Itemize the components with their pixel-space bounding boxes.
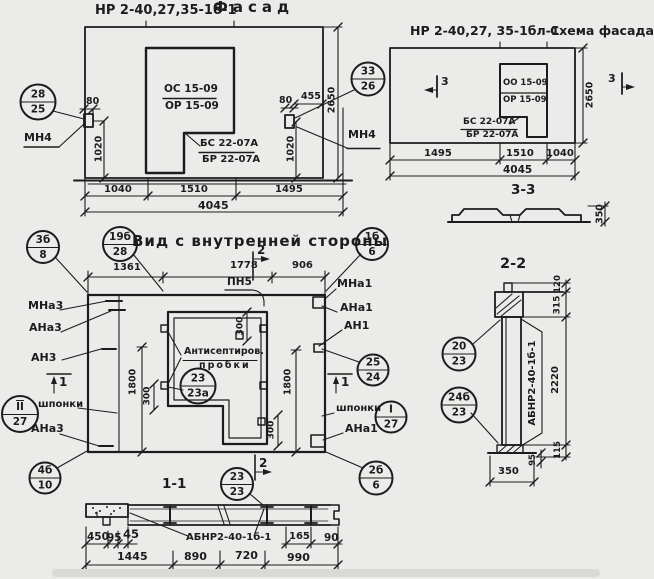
dim-4045-schema: 4045 [503,165,532,176]
dim-906: 906 [292,261,313,271]
callout-bottom: 27 [377,418,406,431]
callout-bottom: 10 [31,479,60,492]
cut-marker-2-bottom: 2 [259,457,267,469]
callout-bottom: 24 [359,371,388,384]
dim-120: 120 [554,275,563,293]
dim-1020-right: 1020 [286,136,296,162]
callout-bottom: 8 [28,248,58,261]
dim-350-s22: 350 [498,467,519,477]
section-2-2-title: 2-2 [500,257,526,272]
plugs-note-line2: пробки [199,361,251,371]
dowels-label-right: шпонки [336,404,381,414]
callout-top: II [3,401,37,415]
callout-24b-23: 24б 23 [441,387,478,424]
schema-title-name: Схема фасада [550,25,654,38]
dim-1800-right: 1800 [283,369,293,395]
callout-top: 2б [361,465,392,479]
dim-1445: 1445 [117,551,148,562]
dim-2650-facade: 2650 [327,87,337,113]
callout-33-26: 33 26 [351,62,386,97]
panel-mark-1-1: АБНР2-40-1б-1 [186,533,271,543]
dim-115: 115 [554,441,563,459]
dim-1040: 1040 [104,185,132,195]
callout-bottom: 23 [443,406,476,419]
callout-23-23: 23 23 [220,467,254,501]
dim-1510-schema: 1510 [506,149,534,159]
callout-3b-8: 3б 8 [26,230,60,264]
callout-top: 25 [359,357,388,371]
callout-top: 4б [31,465,60,479]
dim-315: 315 [554,296,563,315]
section-3-3-title: 3-3 [511,184,535,198]
callout-4b-10: 4б 10 [29,462,62,495]
callout-19b-28: 19б 28 [102,226,138,262]
schema-sill-mark-bottom: БР 22-07А [466,131,518,140]
callout-top: 23 [182,373,215,387]
callout-bottom: 6 [361,479,392,492]
blueprint-sheet: НР 2-40,27,35-1б-1 Фасад 28 25 33 26 МН4… [0,0,654,579]
dim-1040-schema: 1040 [546,149,574,159]
dim-2650-schema: 2650 [585,82,595,108]
cut-marker-2-top: 2 [257,244,265,256]
cut-marker-3-right: 3 [608,73,616,84]
dim-300-left: 300 [144,387,153,406]
anchor-label-an1: АН1 [344,320,369,331]
schema-title-code: НР 2-40,27, 35-1бл-1 [410,25,560,38]
section-1-1-title: 1-1 [162,478,186,492]
callout-bottom: 25 [22,103,55,116]
panel-label-pn5: ПН5 [227,277,252,288]
callout-bottom: 26 [353,80,384,93]
anchor-label-ana3: АНа3 [29,322,62,333]
cut-marker-1-right: 1 [341,376,349,388]
callout-top: 23 [222,471,252,485]
dim-990: 990 [287,552,310,563]
callout-20-23: 20 23 [442,337,477,372]
dim-45: 45 [123,529,139,541]
schema-sill-mark-top: БС 22-07А [463,118,515,127]
callout-bottom: 6 [357,245,387,258]
callout-1b-6: 1б 6 [355,227,389,261]
callout-2b-6: 2б 6 [359,461,394,496]
facade-window-mark-top: ОС 15-09 [164,84,218,95]
callout-top: 33 [353,66,384,80]
facade-window-mark-bottom: ОР 15-09 [165,101,219,112]
anchor-label-mn4-right: МН4 [348,129,376,140]
dim-450: 450 [87,532,109,543]
cut-marker-3-left: 3 [441,76,449,87]
anchor-label-ana1-bottom: АНа1 [345,423,378,434]
callout-top: 3б [28,234,58,248]
anchor-label-mn4-left: МН4 [24,132,52,143]
anchor-label-an3: АН3 [31,352,56,363]
anchor-label-ana1: АНа1 [340,302,373,313]
dowels-label-left: шпонки [38,400,83,410]
dim-165: 165 [289,532,310,542]
callout-top: 19б [104,231,136,245]
dim-890: 890 [184,551,207,562]
dim-1778: 1778 [230,261,258,271]
dim-1495-schema: 1495 [424,149,452,159]
callout-top: 28 [22,89,55,103]
callout-25-24: 25 24 [357,354,390,387]
dim-300-top: 300 [237,317,246,336]
dim-1495: 1495 [275,185,303,195]
anchor-label-mna1: МНа1 [337,278,372,289]
callout-bottom: 23 [222,485,252,498]
dim-455: 455 [301,92,321,102]
dim-95-s11: 95 [107,533,122,544]
dim-720: 720 [235,550,258,561]
callout-top: 24б [443,392,476,406]
schema-window-mark-bottom: ОР 15-09 [503,96,547,105]
callout-23-23a: 23 23а [180,368,217,405]
dim-80-left: 80 [86,97,99,107]
cut-marker-1-left: 1 [59,376,67,388]
dim-1361: 1361 [113,263,141,273]
dim-350-schema: 350 [595,204,605,224]
callout-bottom: 23а [182,387,215,400]
dim-300-bottom: 300 [268,421,277,440]
callout-bottom: 28 [104,245,136,258]
anchor-label-ana3-bottom: АНа3 [31,423,64,434]
dim-80-right: 80 [279,96,292,106]
facade-sill-mark-bottom: БР 22-07А [202,155,260,165]
dim-2220: 2220 [551,366,561,394]
dim-90: 90 [324,533,339,544]
dim-1510: 1510 [180,185,208,195]
dim-4045-facade: 4045 [198,200,229,211]
callout-bottom: 23 [444,355,475,368]
schema-window-mark-top: ОО 15-09 [503,79,548,88]
callout-top: 20 [444,341,475,355]
plugs-note-line1: Антисептиров. [184,347,264,357]
facade-title-name: Фасад [213,0,294,15]
scan-artifact-band [52,569,600,577]
facade-sill-mark-top: БС 22-07А [200,139,258,149]
panel-mark-2-2: АБНР2-40-1б-1 [528,340,538,425]
dim-1800-left: 1800 [128,369,138,395]
callout-top: 1б [357,231,387,245]
callout-28-25: 28 25 [20,84,57,121]
dim-95-s22: 95 [529,454,538,466]
dim-1020-left: 1020 [94,136,104,162]
anchor-label-mna3: МНа3 [28,300,63,311]
